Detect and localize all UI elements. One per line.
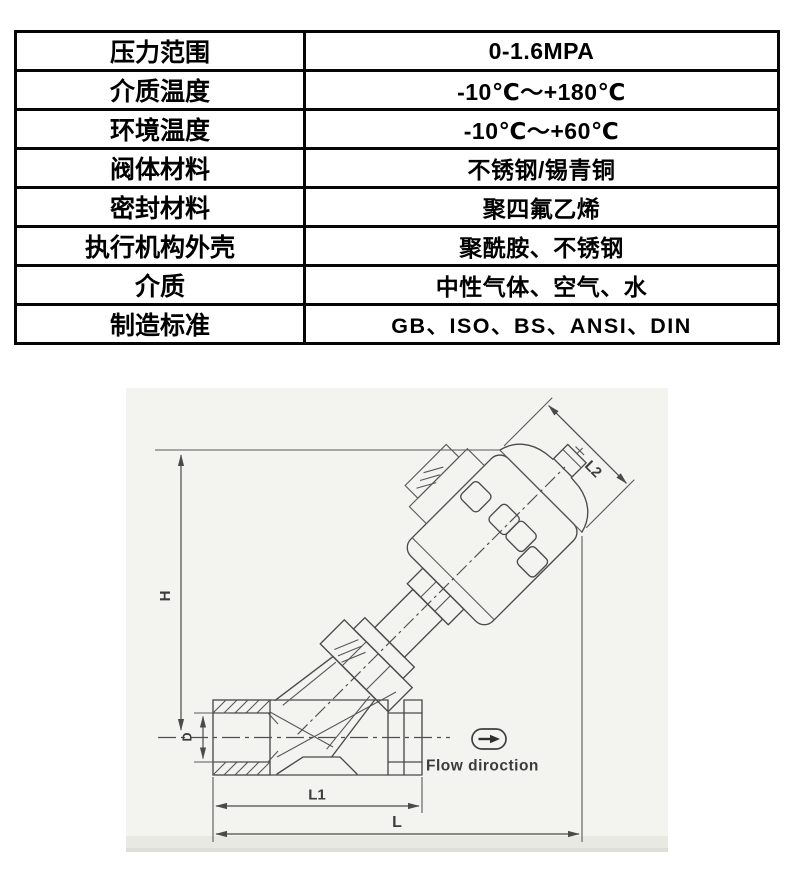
valve-technical-drawing: L2 H D L1 L bbox=[0, 0, 790, 882]
photo-background bbox=[126, 388, 668, 852]
dimension-label-d: D bbox=[181, 732, 195, 741]
dimension-label-l1: L1 bbox=[308, 787, 326, 804]
dimension-label-l: L bbox=[392, 814, 402, 831]
product-spec-page: 压力范围 0-1.6MPA 介质温度 -10℃～+180℃ 环境温度 -10℃～… bbox=[0, 0, 790, 882]
flow-direction-label: Flow diroction bbox=[426, 758, 539, 775]
dimension-label-h: H bbox=[157, 591, 174, 602]
